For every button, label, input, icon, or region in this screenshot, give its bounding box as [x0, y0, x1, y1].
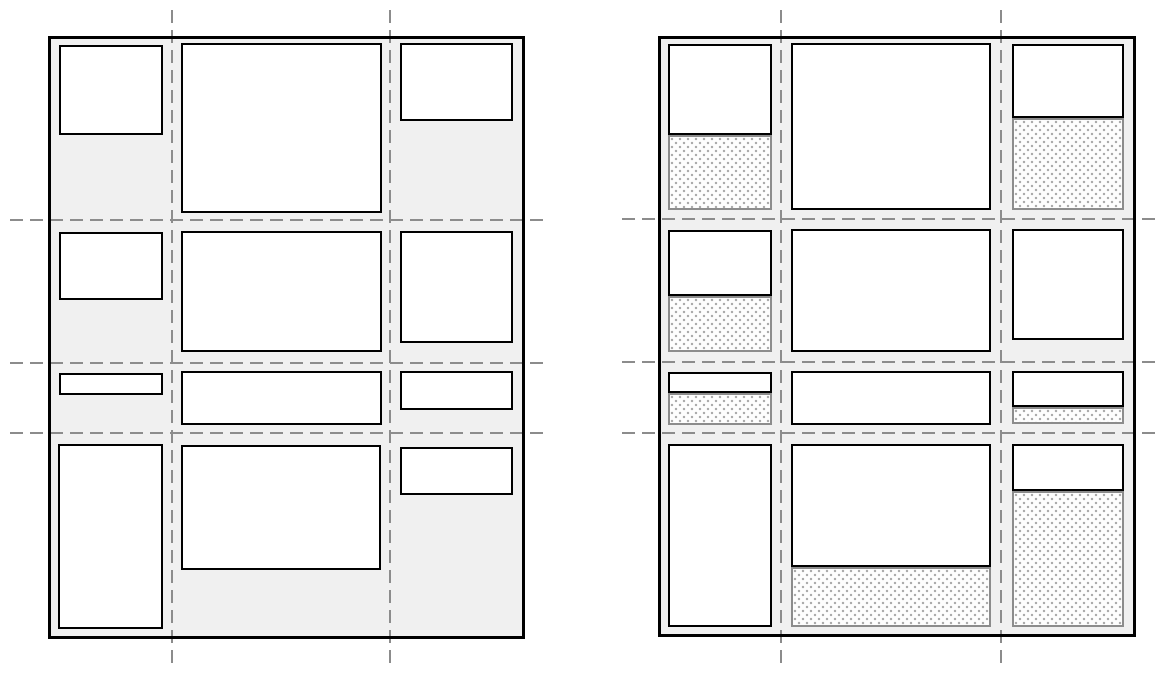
track-space-dotted: [668, 296, 772, 352]
diagram-canvas: [0, 0, 1171, 679]
track-space-dotted: [791, 567, 991, 627]
track-space-dotted: [1012, 407, 1124, 424]
grid-item-box: [791, 444, 991, 567]
grid-item-box: [668, 444, 772, 627]
grid-item-box: [668, 230, 772, 296]
grid-item-box: [668, 372, 772, 393]
grid-item-box: [791, 229, 991, 352]
grid-item-box: [1012, 371, 1124, 407]
grid-item-box: [1012, 229, 1124, 340]
grid-item-box: [791, 371, 991, 425]
track-space-dotted: [1012, 118, 1124, 210]
track-space-dotted: [1012, 491, 1124, 627]
grid-tracks-figure: [0, 0, 1171, 679]
grid-item-box: [791, 43, 991, 210]
track-space-dotted: [668, 393, 772, 425]
grid-item-box: [668, 44, 772, 135]
grid-item-box: [1012, 444, 1124, 491]
track-space-dotted: [668, 135, 772, 210]
grid-item-box: [1012, 44, 1124, 118]
